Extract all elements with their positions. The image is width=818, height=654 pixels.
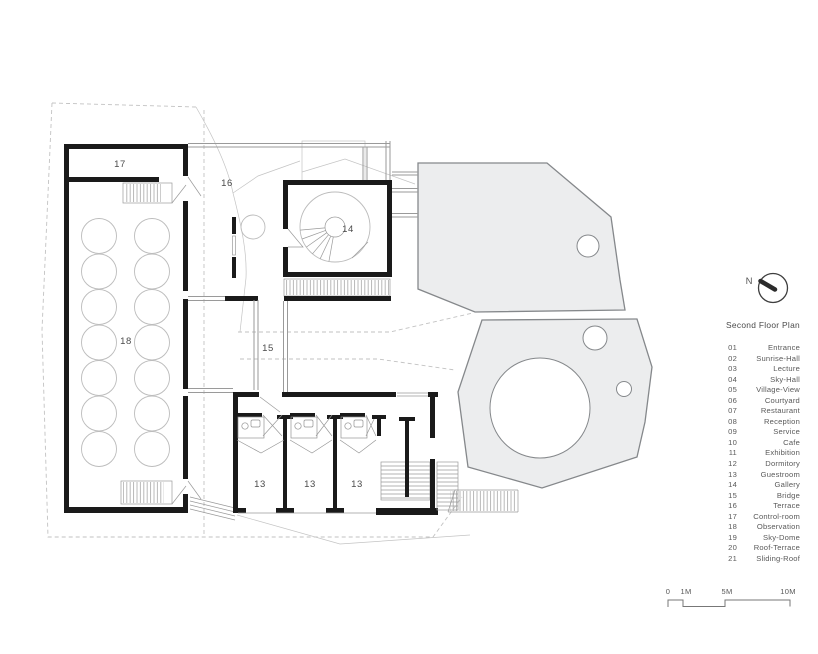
north-label: N <box>746 276 753 287</box>
legend-row: 16Terrace <box>706 501 800 512</box>
legend-entry-number: 19 <box>706 533 737 544</box>
legend-row: 14Gallery <box>706 480 800 491</box>
legend-entry-name: Terrace <box>737 501 800 512</box>
room-label-17: 17 <box>114 159 126 170</box>
legend-entry-name: Sky-Hall <box>737 375 800 386</box>
roof-opening-circle <box>617 382 632 397</box>
floor-plan-drawing: 17 16 14 18 15 13 13 13 N 0 1M 5M 10M <box>0 0 818 654</box>
scale-tick-10m: 10M <box>780 587 796 596</box>
legend-entry-number: 09 <box>706 427 737 438</box>
legend-entry-name: Village-View <box>737 385 800 396</box>
spiral-stair <box>300 217 368 262</box>
legend-entry-number: 11 <box>706 448 737 459</box>
legend-entry-number: 15 <box>706 491 737 502</box>
legend-row: 15Bridge <box>706 491 800 502</box>
walkway-connectors <box>188 141 418 520</box>
floor-plan-page: 17 16 14 18 15 13 13 13 N 0 1M 5M 10M Se… <box>0 0 818 654</box>
legend-row: 10Cafe <box>706 438 800 449</box>
room-label-13c: 13 <box>351 479 363 490</box>
room-label-18: 18 <box>120 336 132 347</box>
legend-entry-number: 03 <box>706 364 737 375</box>
scale-tick-1m: 1M <box>680 587 691 596</box>
legend-row: 11Exhibition <box>706 448 800 459</box>
legend-row: 12Dormitory <box>706 459 800 470</box>
legend-entry-number: 17 <box>706 512 737 523</box>
legend-entry-name: Bridge <box>737 491 800 502</box>
legend-row: 18Observation <box>706 522 800 533</box>
legend-entry-number: 13 <box>706 470 737 481</box>
control-room-wall <box>67 177 159 182</box>
terrace-table <box>241 215 265 239</box>
legend-entry-name: Roof-Terrace <box>737 543 800 554</box>
legend-entry-number: 07 <box>706 406 737 417</box>
legend-entry-number: 04 <box>706 375 737 386</box>
legend-entry-name: Restaurant <box>737 406 800 417</box>
observation-building <box>64 144 201 513</box>
legend-entry-number: 10 <box>706 438 737 449</box>
gallery-deck <box>284 279 391 301</box>
gallery-building <box>283 180 392 301</box>
legend-row: 05Village-View <box>706 385 800 396</box>
legend-entry-name: Sky-Dome <box>737 533 800 544</box>
legend: Second Floor Plan 01Entrance 02Sunrise-H… <box>706 320 800 564</box>
legend-entry-number: 01 <box>706 343 737 354</box>
legend-entry-name: Reception <box>737 417 800 428</box>
room-label-14: 14 <box>342 224 354 235</box>
room-label-13a: 13 <box>254 479 266 490</box>
roof-terrace-upper <box>418 163 625 312</box>
legend-row: 03Lecture <box>706 364 800 375</box>
legend-row: 20Roof-Terrace <box>706 543 800 554</box>
legend-entry-name: Guestroom <box>737 470 800 481</box>
legend-entry-number: 08 <box>706 417 737 428</box>
legend-entry-name: Service <box>737 427 800 438</box>
room-label-13b: 13 <box>304 479 316 490</box>
legend-row: 01Entrance <box>706 343 800 354</box>
north-arrow: N <box>746 274 788 303</box>
legend-entry-name: Courtyard <box>737 396 800 407</box>
legend-entry-name: Observation <box>737 522 800 533</box>
scale-tick-5m: 5M <box>721 587 732 596</box>
legend-entry-name: Sliding-Roof <box>737 554 800 565</box>
legend-entry-number: 20 <box>706 543 737 554</box>
legend-entry-name: Lecture <box>737 364 800 375</box>
legend-entry-name: Sunrise-Hall <box>737 354 800 365</box>
legend-row: 04Sky-Hall <box>706 375 800 386</box>
scale-bar: 0 1M 5M 10M <box>666 587 796 607</box>
legend-row: 19Sky-Dome <box>706 533 800 544</box>
legend-entry-name: Entrance <box>737 343 800 354</box>
legend-row: 21Sliding-Roof <box>706 554 800 565</box>
stair-bottom <box>121 481 201 504</box>
scale-tick-0: 0 <box>666 587 670 596</box>
bathrooms <box>235 413 376 453</box>
legend-entry-number: 06 <box>706 396 737 407</box>
legend-entry-number: 18 <box>706 522 737 533</box>
legend-row: 02Sunrise-Hall <box>706 354 800 365</box>
sky-dome-opening <box>490 358 590 458</box>
legend-row: 07Restaurant <box>706 406 800 417</box>
legend-entry-number: 05 <box>706 385 737 396</box>
legend-row: 17Control-room <box>706 512 800 523</box>
legend-entry-number: 21 <box>706 554 737 565</box>
roof-opening-circle <box>577 235 599 257</box>
legend-row: 13Guestroom <box>706 470 800 481</box>
legend-entry-name: Exhibition <box>737 448 800 459</box>
room-label-16: 16 <box>221 178 233 189</box>
roof-opening-circle <box>583 326 607 350</box>
legend-row: 09Service <box>706 427 800 438</box>
legend-entry-name: Control-room <box>737 512 800 523</box>
legend-row: 06Courtyard <box>706 396 800 407</box>
sky-dome-terrace <box>458 319 652 488</box>
legend-entry-name: Gallery <box>737 480 800 491</box>
legend-entry-name: Cafe <box>737 438 800 449</box>
legend-entry-name: Dormitory <box>737 459 800 470</box>
page-title: Second Floor Plan <box>706 320 800 330</box>
stair-guestwing <box>238 397 438 515</box>
gallery-drum <box>300 192 370 262</box>
legend-entry-number: 14 <box>706 480 737 491</box>
legend-entry-number: 16 <box>706 501 737 512</box>
room-label-15: 15 <box>262 343 274 354</box>
legend-row: 08Reception <box>706 417 800 428</box>
legend-entry-number: 02 <box>706 354 737 365</box>
legend-entry-number: 12 <box>706 459 737 470</box>
